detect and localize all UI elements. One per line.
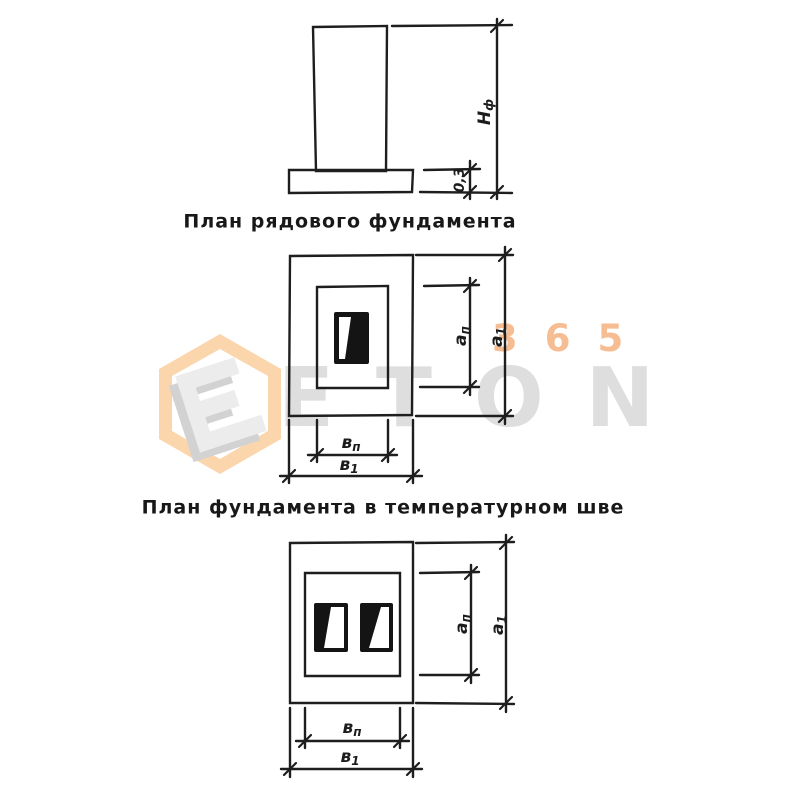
column-socket-symbol-left: [314, 603, 348, 652]
dim-label-bp-1: вп: [341, 435, 360, 453]
footing-outline: [289, 170, 413, 193]
column-outline: [313, 26, 387, 171]
dim-label-bp-2: вп: [342, 720, 361, 738]
dim-label-ap-1: ап: [453, 326, 471, 346]
dim-label-b1-1: в1: [339, 457, 358, 475]
dim-label-footing-thickness: 0,3: [453, 168, 467, 193]
column-socket-symbol: [334, 312, 369, 364]
dim-label-b1-2: в1: [340, 749, 359, 767]
foundation-drawing-canvas: 365 ETON: [0, 0, 800, 800]
dim-label-a1-1: а1: [489, 327, 507, 347]
dim-label-a1-2: а1: [490, 615, 508, 635]
plan-ordinary-title: План рядового фундамента: [183, 213, 516, 232]
footing-plan-outline-joint: [290, 542, 413, 703]
plan-joint-view: [281, 535, 514, 777]
plan-ordinary-view: [280, 247, 513, 483]
column-socket-symbol-right: [360, 603, 393, 652]
dim-label-ap-2: ап: [454, 614, 472, 634]
plan-joint-title: План фундамента в температурном шве: [142, 499, 625, 518]
dim-label-nf: Нф: [477, 99, 495, 125]
